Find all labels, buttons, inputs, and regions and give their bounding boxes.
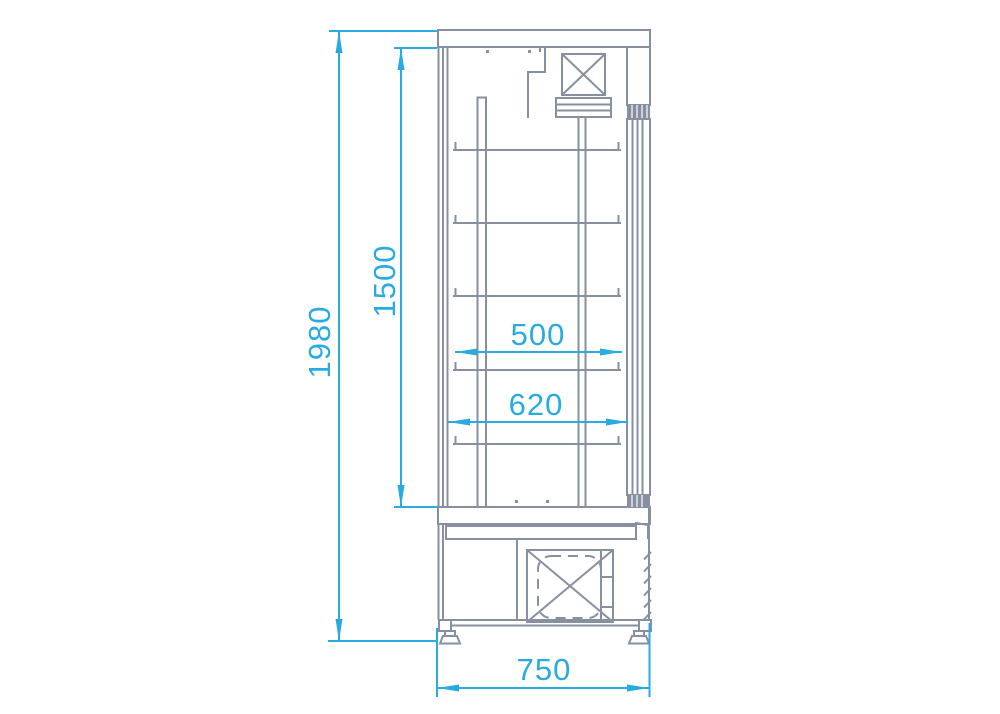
foot-left: [440, 631, 460, 644]
arrow-left-icon: [455, 349, 477, 356]
machine-compartment: [438, 507, 651, 644]
bottom-insulation-band: [438, 507, 650, 524]
arrow-down-icon: [336, 619, 343, 641]
dimension-shelf-width-upper: 500: [455, 317, 622, 356]
rear-duct-panel: [627, 119, 650, 495]
dimensions: 1980 1500 500: [302, 31, 649, 697]
foot-right: [629, 631, 649, 644]
dimension-shelf-width-lower: 620: [448, 387, 628, 426]
arrow-left-icon: [448, 419, 470, 426]
dimension-interior-height: 1500: [367, 48, 437, 507]
fastener-dots: [486, 50, 549, 503]
foot-mount-left: [439, 620, 451, 631]
cabinet-side-elevation-drawing: 1980 1500 500: [0, 0, 1000, 714]
arrow-left-icon: [437, 685, 459, 692]
drip-tray-flap: [636, 523, 648, 539]
dim-label-interior-height: 1500: [367, 245, 402, 318]
technical-drawing-canvas: 1980 1500 500: [0, 0, 1000, 714]
fan-base: [556, 98, 611, 117]
arrow-up-icon: [336, 31, 343, 53]
dimension-overall-height: 1980: [302, 31, 437, 641]
dim-label-overall-height: 1980: [302, 306, 337, 379]
dim-label-shelf-width-lower: 620: [509, 387, 564, 422]
dim-label-overall-depth: 750: [517, 652, 572, 687]
dimension-overall-depth: 750: [437, 623, 650, 697]
compressor-unit: [527, 550, 613, 622]
arrow-right-icon: [600, 349, 622, 356]
arrow-down-icon: [398, 485, 405, 507]
front-shelf-post: [478, 98, 487, 508]
rear-shelf-post: [579, 118, 586, 507]
rear-wall-block-lower: [627, 495, 650, 507]
drip-tray: [446, 526, 636, 539]
top-insulation-band: [438, 30, 650, 47]
air-baffle: [528, 46, 545, 118]
dim-label-shelf-width-upper: 500: [511, 317, 566, 352]
rear-wall-insulation: [627, 47, 650, 105]
glass-door: [439, 47, 448, 507]
arrow-right-icon: [627, 685, 649, 692]
evaporator-fan-unit: [556, 54, 611, 117]
arrow-up-icon: [398, 48, 405, 70]
rear-wall-block-upper: [627, 105, 650, 119]
arrow-right-icon: [606, 419, 628, 426]
